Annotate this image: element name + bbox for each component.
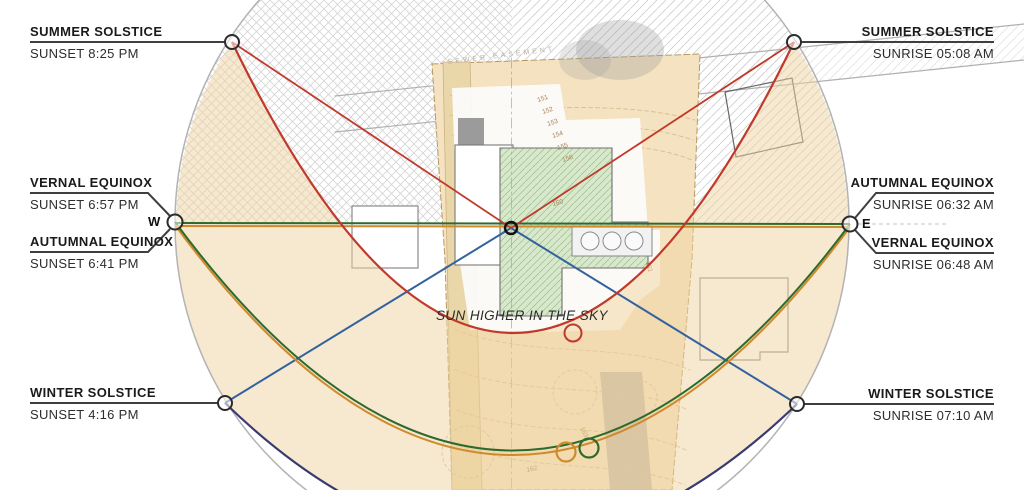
label-time: SUNSET 8:25 PM bbox=[30, 46, 162, 61]
sun-higher-note: SUN HIGHER IN THE SKY bbox=[436, 308, 608, 323]
label-time: SUNRISE 06:48 AM bbox=[872, 257, 994, 272]
west-label: W bbox=[148, 214, 160, 229]
tree-canopy-2 bbox=[559, 40, 611, 80]
label-title: AUTUMNAL EQUINOX bbox=[30, 234, 173, 249]
label-time: SUNSET 6:57 PM bbox=[30, 197, 152, 212]
label-time: SUNSET 4:16 PM bbox=[30, 407, 156, 422]
label-title: SUMMER SOLSTICE bbox=[862, 24, 994, 39]
label-time: SUNRISE 07:10 AM bbox=[868, 408, 994, 423]
label-vernal-sunrise: VERNAL EQUINOX SUNRISE 06:48 AM bbox=[872, 235, 994, 272]
planter-pot bbox=[603, 232, 621, 250]
label-title: VERNAL EQUINOX bbox=[30, 175, 152, 190]
sun-path-diagram: SEWER EASEMENT 151 152 153 154 155 156 1… bbox=[0, 0, 1024, 490]
label-title: AUTUMNAL EQUINOX bbox=[851, 175, 994, 190]
summer-sunrise-node bbox=[787, 35, 801, 49]
planter-pot bbox=[625, 232, 643, 250]
label-title: WINTER SOLSTICE bbox=[30, 385, 156, 400]
label-winter-sunset: WINTER SOLSTICE SUNSET 4:16 PM bbox=[30, 385, 156, 422]
label-title: SUMMER SOLSTICE bbox=[30, 24, 162, 39]
label-summer-sunset: SUMMER SOLSTICE SUNSET 8:25 PM bbox=[30, 24, 162, 61]
summer-sunset-node bbox=[225, 35, 239, 49]
label-vernal-sunset: VERNAL EQUINOX SUNSET 6:57 PM bbox=[30, 175, 152, 212]
planter-pot bbox=[581, 232, 599, 250]
east-label: E bbox=[862, 216, 871, 231]
label-title: VERNAL EQUINOX bbox=[872, 235, 994, 250]
label-autumnal-sunrise: AUTUMNAL EQUINOX SUNRISE 06:32 AM bbox=[851, 175, 994, 212]
label-title: WINTER SOLSTICE bbox=[868, 386, 994, 401]
label-autumnal-sunset: AUTUMNAL EQUINOX SUNSET 6:41 PM bbox=[30, 234, 173, 271]
label-time: SUNSET 6:41 PM bbox=[30, 256, 173, 271]
winter-sunset-node bbox=[218, 396, 232, 410]
winter-sunrise-node bbox=[790, 397, 804, 411]
east-node bbox=[843, 217, 858, 232]
label-winter-sunrise: WINTER SOLSTICE SUNRISE 07:10 AM bbox=[868, 386, 994, 423]
label-summer-sunrise: SUMMER SOLSTICE SUNRISE 05:08 AM bbox=[862, 24, 994, 61]
label-time: SUNRISE 06:32 AM bbox=[851, 197, 994, 212]
label-time: SUNRISE 05:08 AM bbox=[862, 46, 994, 61]
west-node bbox=[168, 215, 183, 230]
